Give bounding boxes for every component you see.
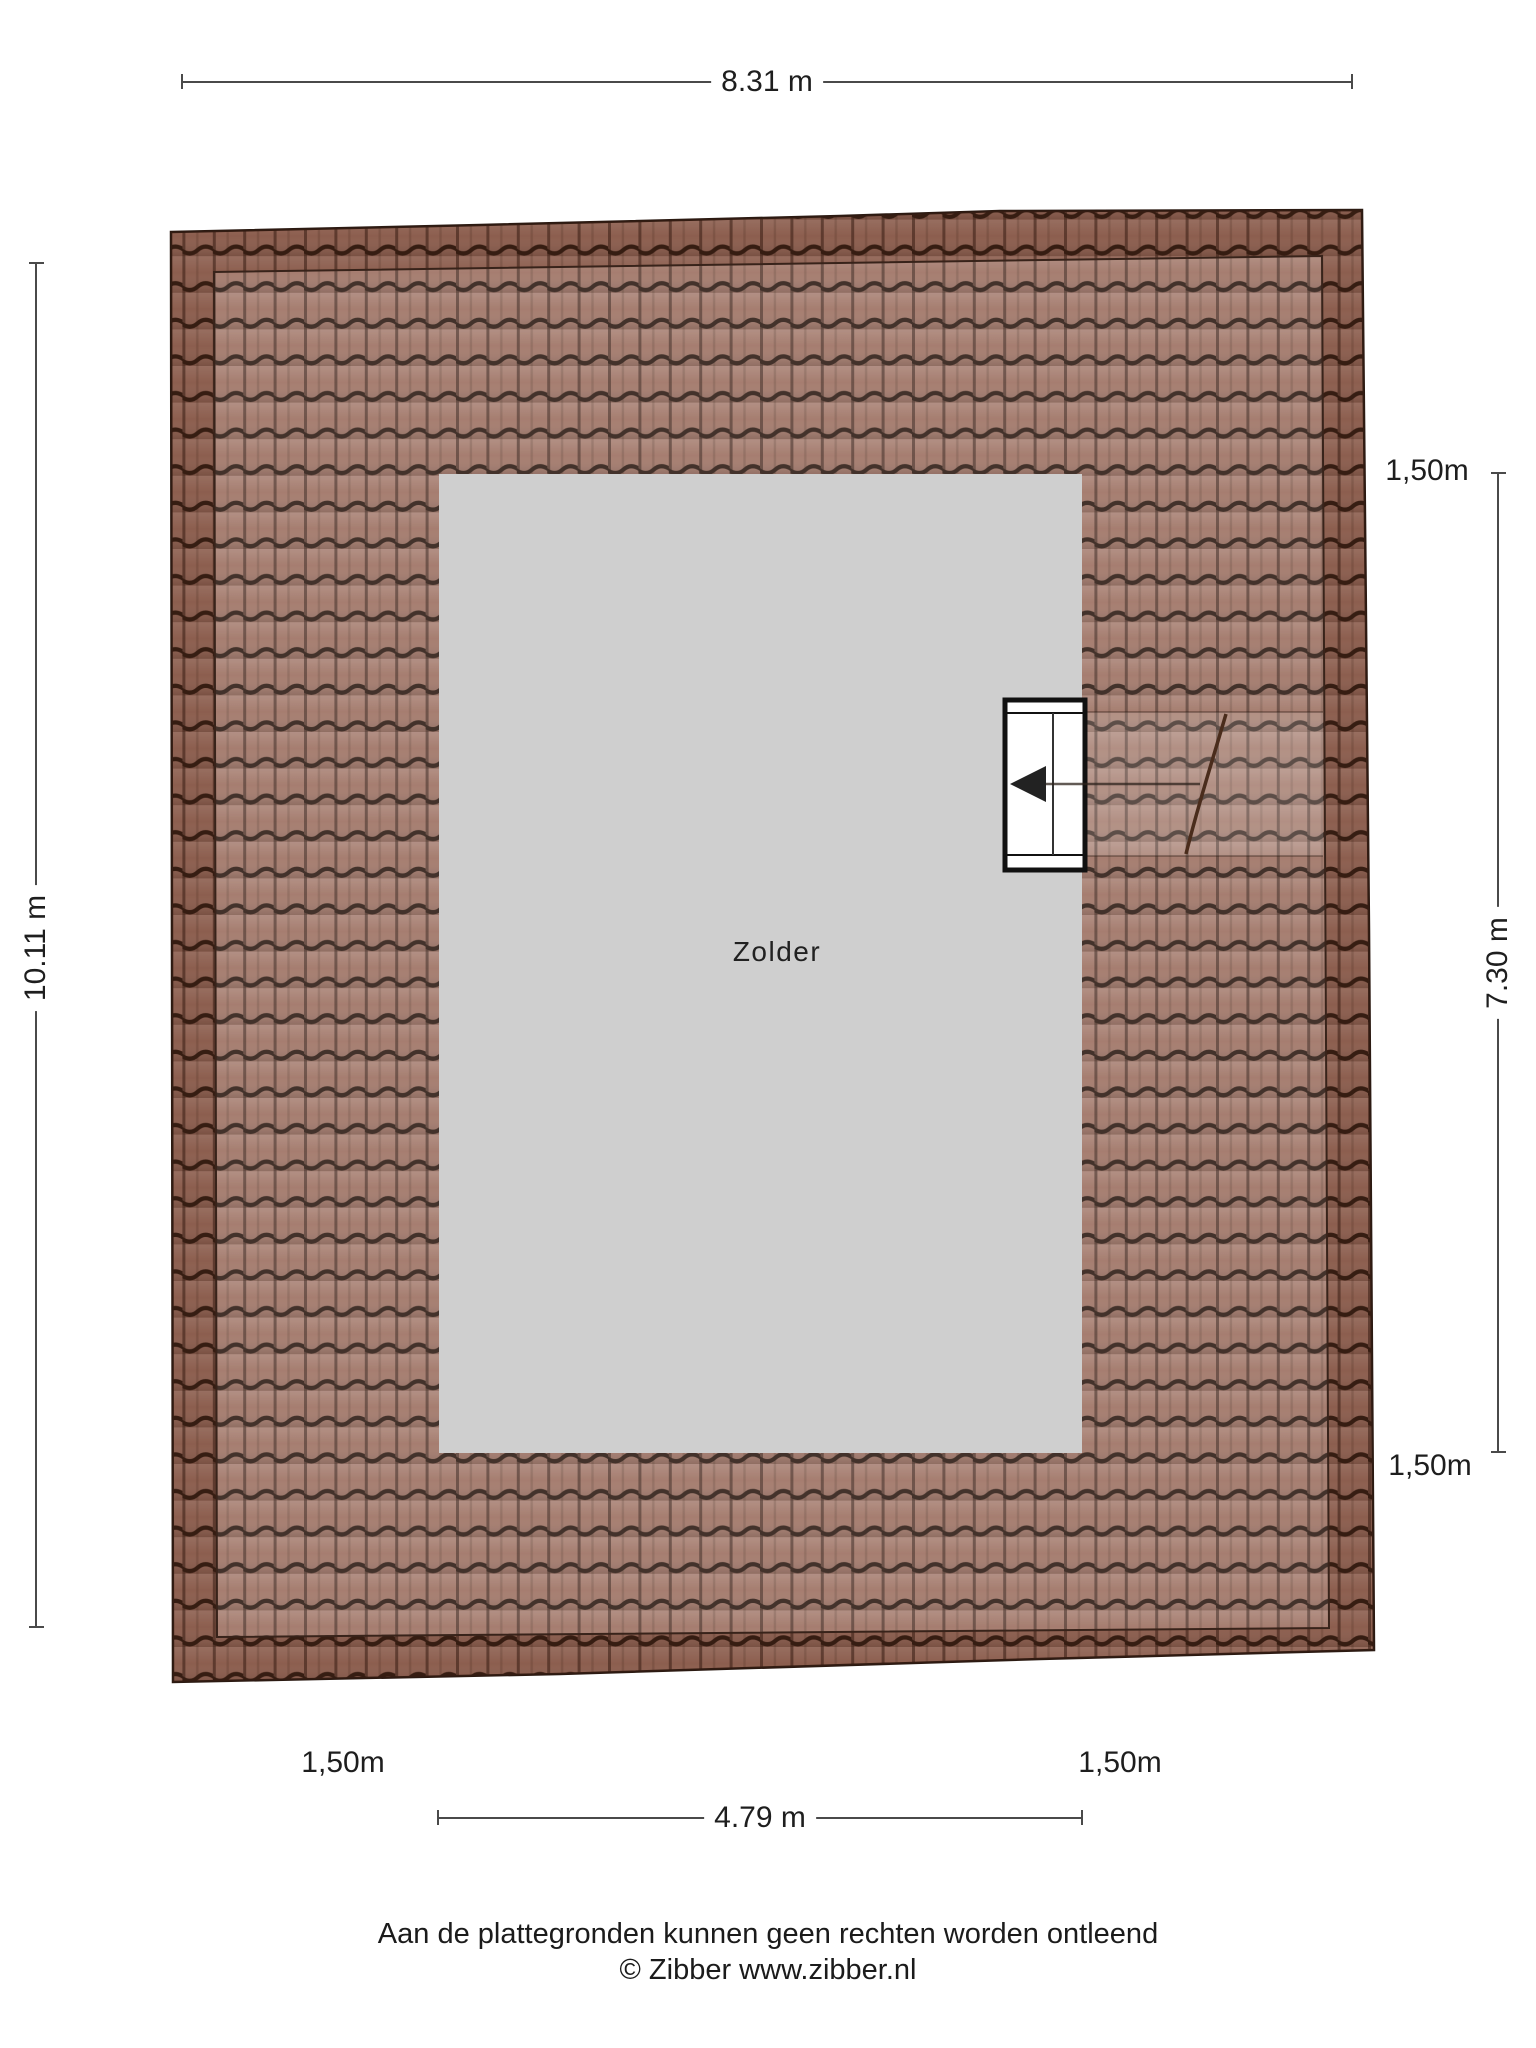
- dimension-label-inner-width: 4.79 m: [704, 1799, 816, 1837]
- dimension-label-right: 7.30 m: [1479, 907, 1517, 1019]
- offset-label-right-bottom: 1,50m: [1388, 1449, 1471, 1483]
- dimension-tick: [29, 262, 44, 264]
- dimension-tick: [437, 1810, 439, 1825]
- floorplan-drawing: [0, 0, 1536, 2048]
- floorplan-page: Zolder 8.31 m 10.11 m 7.30 m 1,50m 1,50m…: [0, 0, 1536, 2048]
- offset-label-right-top: 1,50m: [1385, 454, 1468, 488]
- dimension-tick: [1351, 74, 1353, 89]
- dimension-tick: [181, 74, 183, 89]
- dimension-tick: [1491, 472, 1506, 474]
- dimension-label-top: 8.31 m: [711, 63, 823, 101]
- offset-label-bottom-right: 1,50m: [1078, 1746, 1161, 1780]
- dimension-tick: [29, 1626, 44, 1628]
- footer-disclaimer: Aan de plattegronden kunnen geen rechten…: [0, 1918, 1536, 1951]
- dimension-tick: [1081, 1810, 1083, 1825]
- dimension-tick: [1491, 1451, 1506, 1453]
- offset-label-bottom-left: 1,50m: [301, 1746, 384, 1780]
- room-label: Zolder: [733, 936, 821, 968]
- footer-copyright: © Zibber www.zibber.nl: [0, 1954, 1536, 1987]
- dimension-label-left: 10.11 m: [17, 885, 55, 1011]
